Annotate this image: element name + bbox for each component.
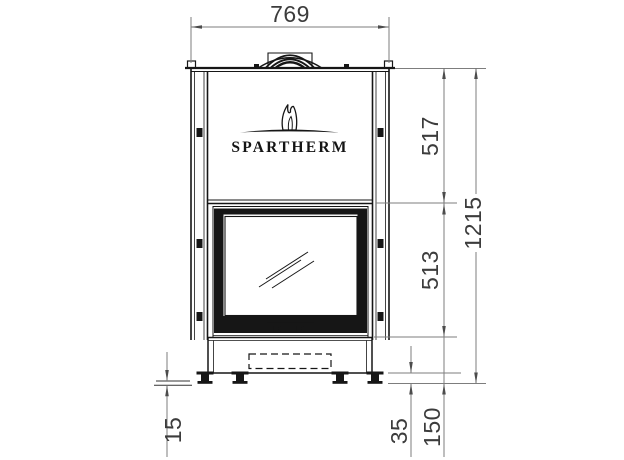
top-assembly	[185, 53, 395, 72]
dim-total-height: 1215	[460, 68, 486, 384]
fireplace-drawing: SPARTHERM	[0, 0, 624, 460]
left-rail-tab-top	[197, 128, 203, 137]
dim-label-foot-height: 35	[386, 418, 412, 445]
base-vent-dashed-outline	[249, 354, 331, 369]
door-assembly	[213, 207, 368, 338]
door-frame-right-band	[358, 209, 368, 334]
dim-section-heights: 517 513 150	[417, 68, 446, 457]
upper-panel: SPARTHERM	[208, 105, 373, 204]
right-rail-tab-mid	[378, 239, 384, 248]
flame-inner-icon	[288, 117, 292, 131]
left-rail-tab-mid	[197, 239, 203, 248]
dimensions: 769 517 513 150 1215	[160, 1, 486, 457]
base-box	[208, 338, 372, 374]
door-frame-left-band	[214, 209, 224, 334]
foot-4	[367, 372, 384, 384]
dim-leveling-range: 15	[160, 352, 186, 457]
flue-dome	[259, 53, 321, 68]
latch-left-pin	[276, 327, 279, 330]
brand-logo-text: SPARTHERM	[231, 139, 348, 156]
dim-foot-height: 35	[386, 346, 413, 457]
dim-label-upper-height: 517	[417, 116, 443, 156]
right-rail-tab-bottom	[378, 312, 384, 321]
dim-label-total-height: 1215	[460, 196, 486, 249]
dim-label-door-height: 513	[417, 250, 443, 290]
dim-overall-width: 769	[191, 1, 389, 63]
dim-label-overall-width: 769	[270, 1, 310, 27]
top-screw-right	[344, 64, 349, 68]
left-rail-tab-bottom	[197, 312, 203, 321]
dim-label-base-height: 150	[419, 407, 445, 447]
fireplace-unit: SPARTHERM	[154, 53, 395, 385]
brand-logo: SPARTHERM	[231, 105, 348, 157]
dim-label-leveling-range: 15	[160, 417, 186, 444]
top-screw-left	[254, 64, 259, 68]
right-rail-tab-top	[378, 128, 384, 137]
foot-1	[197, 372, 214, 384]
flame-icon	[282, 105, 297, 131]
logo-underline	[240, 130, 339, 133]
foot-2	[232, 372, 249, 384]
glass-reflection-lines	[259, 252, 314, 288]
latch-right-pin	[299, 327, 302, 330]
base-assembly	[154, 338, 384, 386]
foot-3	[332, 372, 349, 384]
technical-drawing-canvas: SPARTHERM	[0, 0, 624, 460]
door-frame-top-band	[214, 209, 367, 215]
door-frame-bottom-band	[214, 316, 367, 333]
